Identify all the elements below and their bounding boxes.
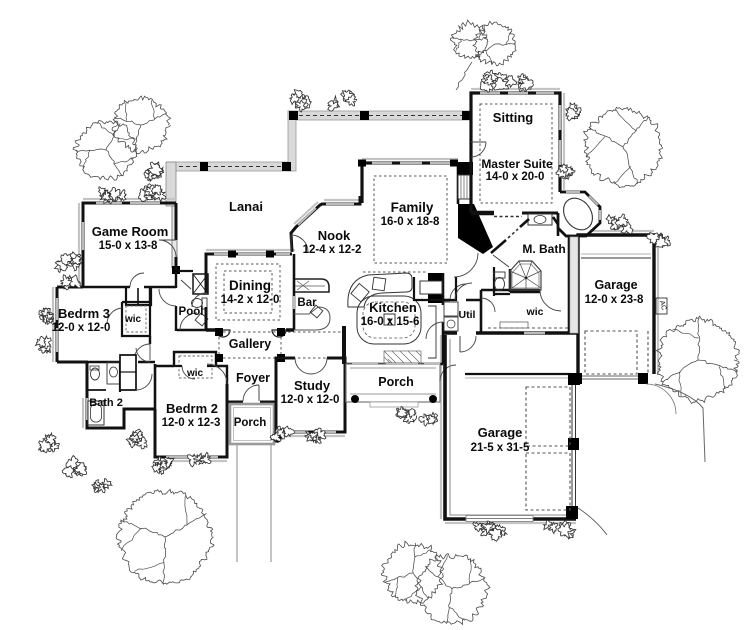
svg-text:Foyer: Foyer [236, 371, 270, 385]
svg-text:Dining: Dining [229, 278, 271, 293]
svg-text:12-0 x 12-3: 12-0 x 12-3 [162, 417, 221, 429]
svg-text:Study: Study [294, 378, 331, 393]
svg-text:wic: wic [526, 306, 544, 318]
svg-text:Porch: Porch [234, 417, 267, 429]
svg-text:12-0 x 23-8: 12-0 x 23-8 [585, 294, 644, 306]
svg-text:Kitchen: Kitchen [369, 300, 417, 315]
svg-text:Bedrm 3: Bedrm 3 [58, 306, 110, 321]
svg-text:12-4 x 12-2: 12-4 x 12-2 [303, 244, 362, 256]
svg-text:14-2 x 12-0: 14-2 x 12-0 [221, 294, 280, 306]
svg-text:Family: Family [391, 200, 434, 215]
svg-text:14-0 x 20-0: 14-0 x 20-0 [486, 171, 545, 183]
svg-text:Gallery: Gallery [229, 337, 271, 351]
svg-text:21-5 x 31-5: 21-5 x 31-5 [471, 442, 530, 454]
svg-text:Lanai: Lanai [229, 199, 263, 214]
svg-text:12-0 x 12-0: 12-0 x 12-0 [281, 394, 340, 406]
svg-text:Garage: Garage [594, 278, 637, 292]
svg-text:Nook: Nook [318, 228, 351, 243]
svg-text:16-0 x 18-8: 16-0 x 18-8 [381, 216, 440, 228]
svg-text:wic: wic [186, 368, 204, 379]
svg-text:Bedrm 2: Bedrm 2 [166, 401, 218, 416]
svg-text:Garage: Garage [478, 425, 523, 440]
svg-text:Game Room: Game Room [92, 224, 169, 239]
svg-text:Util: Util [459, 309, 476, 321]
svg-text:Sitting: Sitting [493, 110, 533, 125]
svg-text:15-0 x 13-8: 15-0 x 13-8 [99, 240, 158, 252]
svg-text:Bath 2: Bath 2 [89, 397, 123, 409]
svg-text:Porch: Porch [378, 375, 413, 389]
svg-text:16-0 x 15-6: 16-0 x 15-6 [361, 316, 420, 328]
svg-text:Pool: Pool [179, 306, 204, 318]
svg-text:wic: wic [124, 314, 142, 325]
svg-text:12-0 x 12-0: 12-0 x 12-0 [52, 322, 111, 334]
svg-text:M. Bath: M. Bath [522, 242, 565, 256]
svg-text:Bar: Bar [297, 297, 317, 309]
svg-text:Master Suite: Master Suite [481, 157, 553, 171]
